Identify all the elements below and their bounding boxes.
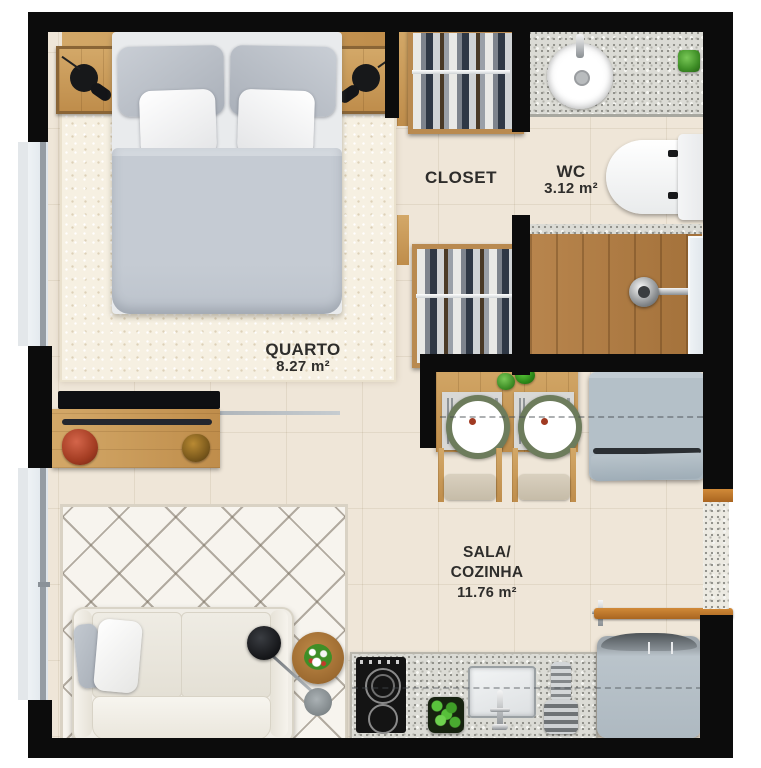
sideboard-plant-dry-icon: [182, 434, 210, 462]
wall-stub-bedroom-closet: [385, 12, 399, 118]
wall-bottom: [28, 738, 712, 758]
wc-plant-icon: [678, 50, 700, 72]
coffee-table-flowers-icon: [304, 644, 332, 672]
chair-2-cushion: [518, 474, 570, 500]
floor-lamp-head-icon: [247, 626, 281, 660]
toilet-hinge-bottom: [668, 192, 678, 199]
floor-plan: QUARTO 8.27 m² CLOSET WC 3.12 m²: [0, 0, 761, 768]
wall-closet-wc-lower: [512, 215, 530, 375]
cooktop-controls: [360, 660, 402, 664]
shower-curb: [530, 224, 702, 234]
bed-pillow-white-right: [237, 89, 315, 158]
wc-sink-faucet-icon: [576, 34, 584, 58]
refrigerator-door: [591, 453, 704, 482]
quarto-area: 8.27 m²: [223, 359, 383, 376]
wardrobe-top-rail: [412, 70, 510, 74]
sideboard-plant-red-icon: [62, 429, 98, 465]
wc-sink-drain: [574, 70, 590, 86]
room-label-closet: CLOSET: [400, 168, 522, 187]
room-label-sala: SALA/ COZINHA 11.76 m²: [407, 543, 567, 603]
kitchen-faucet-handle: [490, 708, 510, 712]
floor-lamp-base-icon: [304, 688, 332, 716]
window-left-lower-mullion: [38, 582, 50, 587]
wardrobe-bottom-rail: [416, 294, 516, 298]
window-left-upper-frame: [40, 142, 46, 346]
plate-2-garnish: [541, 418, 548, 425]
kitchen-faucet-base: [492, 724, 508, 730]
bed-pillow-white-left: [139, 89, 217, 158]
closet-name: CLOSET: [400, 168, 522, 187]
wall-right-lower: [700, 615, 733, 758]
sala-name-line2: COZINHA: [407, 563, 567, 583]
cooktop-burner-1-inner: [371, 674, 395, 698]
room-label-quarto: QUARTO 8.27 m²: [223, 340, 383, 376]
wall-left-upper: [28, 12, 48, 142]
tv-icon: [58, 391, 220, 409]
wc-area: 3.12 m²: [511, 181, 631, 198]
toilet-hinge-top: [668, 150, 678, 157]
fruit-bowl-icon: [428, 697, 464, 733]
wall-closet-wc-upper: [512, 12, 530, 132]
soundbar-icon: [62, 419, 212, 425]
plate-1-garnish: [469, 418, 476, 425]
shower-arm: [654, 288, 692, 295]
dish-stack-large: [544, 700, 578, 734]
shower-head-center: [638, 286, 650, 298]
window-right-frame-top: [703, 489, 733, 502]
washing-machine-hinge-2: [671, 642, 673, 654]
wall-stub-dining: [420, 354, 436, 448]
wall-left-middle: [28, 346, 52, 468]
window-left-lower-sill: [18, 468, 28, 700]
chair-1-cushion: [444, 474, 496, 500]
sala-name-line1: SALA/: [407, 543, 567, 563]
dish-stack-small: [551, 662, 571, 702]
sala-area: 11.76 m²: [407, 583, 567, 603]
sofa-backrest: [92, 696, 271, 740]
dining-chair-2: [512, 448, 576, 502]
wc-name: WC: [511, 162, 631, 181]
sofa-pillow-white: [93, 618, 143, 694]
wall-top: [28, 12, 733, 32]
window-right: [703, 502, 729, 609]
chair-2-rail-right: [570, 448, 576, 502]
closet-side-panel-bottom: [397, 215, 409, 265]
projection-line-dining: [440, 416, 703, 418]
washing-machine-hinge-1: [648, 642, 650, 654]
dining-chair-1: [438, 448, 502, 502]
bed-duvet: [112, 148, 342, 314]
wall-right-upper: [703, 12, 733, 489]
projection-line-kitchen: [352, 687, 702, 689]
window-left-upper-sill: [18, 142, 28, 346]
dining-plant-1-icon: [497, 373, 515, 390]
room-label-wc: WC 3.12 m²: [511, 162, 631, 198]
chair-1-rail-right: [496, 448, 502, 502]
wall-mid-horizontal: [420, 354, 733, 372]
quarto-name: QUARTO: [223, 340, 383, 359]
wardrobe-top: [408, 28, 524, 134]
cooktop-burner-2-icon: [368, 704, 398, 734]
